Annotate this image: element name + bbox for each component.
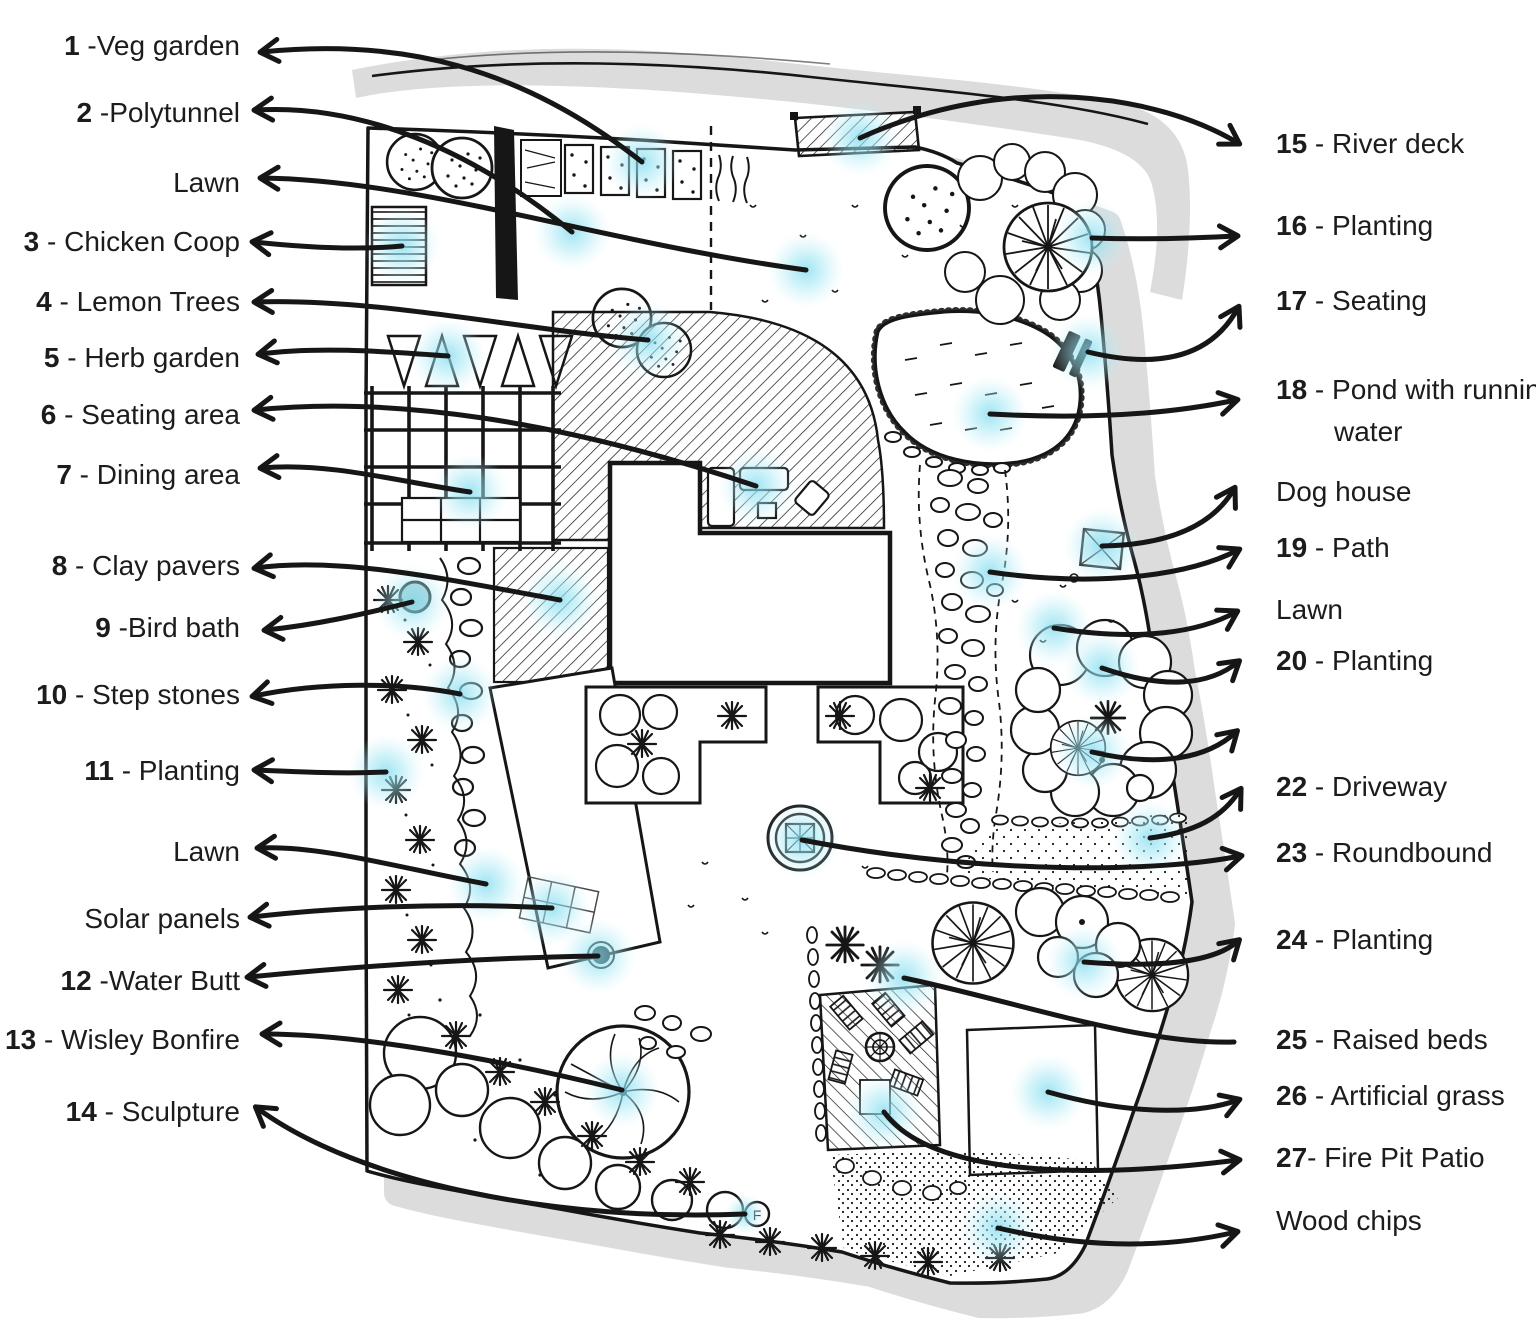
garden-plan-diagram: F 1 -Veg garden2 -PolytunnelLawn3 - Chic… (0, 0, 1536, 1321)
callout-arrow-planting-16 (1092, 236, 1236, 239)
compost-bin (521, 140, 561, 196)
callout-arrow-planting-11 (256, 770, 386, 773)
fire-pit (866, 1033, 894, 1061)
garden-plan: F (0, 0, 1536, 1321)
